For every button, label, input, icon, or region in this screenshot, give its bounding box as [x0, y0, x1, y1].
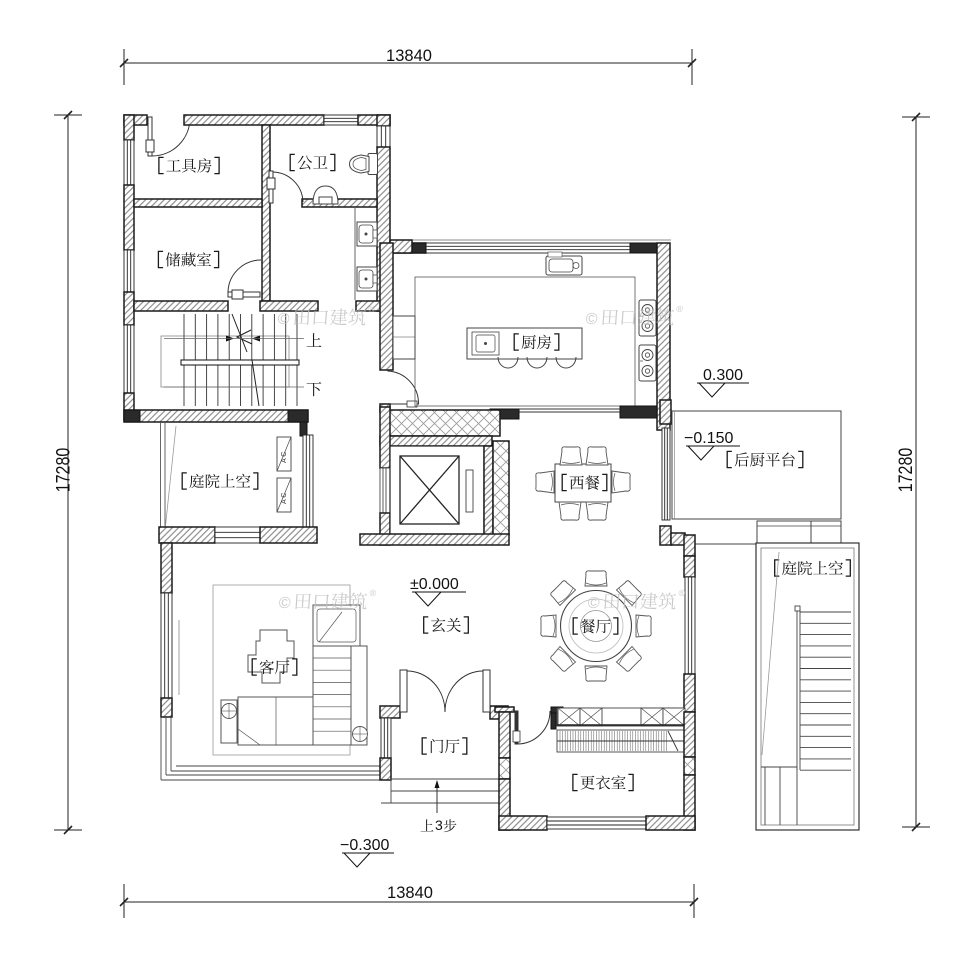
svg-text:©: © [585, 311, 598, 328]
svg-text:0.300: 0.300 [703, 367, 743, 384]
svg-text:−0.150: −0.150 [684, 430, 733, 447]
svg-text:®: ® [678, 588, 686, 598]
svg-text:−0.300: −0.300 [340, 837, 389, 854]
svg-text:®: ® [369, 588, 377, 598]
svg-text:©: © [277, 311, 290, 328]
svg-text:17280: 17280 [895, 448, 917, 493]
svg-text:®: ® [368, 304, 376, 314]
svg-text:A C: A C [281, 452, 288, 463]
svg-text:©: © [587, 595, 600, 612]
svg-text:±0.000: ±0.000 [410, 576, 459, 593]
svg-text:13840: 13840 [387, 884, 433, 902]
svg-text:©: © [278, 595, 291, 612]
svg-text:13840: 13840 [386, 47, 432, 65]
svg-text:A C: A C [281, 493, 288, 504]
svg-text:®: ® [676, 304, 684, 314]
svg-text:17280: 17280 [52, 448, 74, 493]
svg-text:3: 3 [435, 817, 443, 833]
